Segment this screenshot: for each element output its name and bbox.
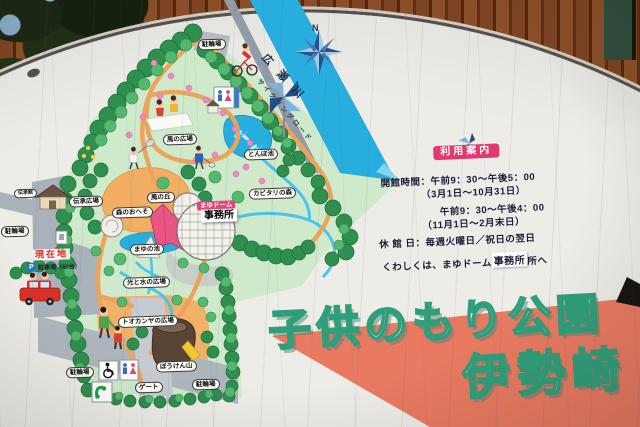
compass-north-letter: N: [312, 23, 319, 33]
map-label-folk-house: 伝承館: [14, 189, 37, 199]
contact-line: くわしくは、まゆドーム事務所所へ: [382, 251, 548, 273]
usage-info-panel: 利用案内 開館時間：午前9：30～午後5：00 （3月1日～10月31日） 午前…: [375, 139, 596, 288]
map-label-bicycle-right: 駐輪場: [192, 379, 220, 391]
map-label-gate: ゲート: [135, 382, 163, 394]
map-label-adventure-hill: ぼうけん山: [156, 360, 197, 372]
map-label-bicycle-left: 駐輪場: [66, 367, 94, 379]
map-label-densho-plaza: 伝承広場: [69, 195, 103, 207]
map-label-bicycle-west: 駐輪場: [1, 226, 29, 238]
map-label-tookanya-plaza: トオカンヤの広場: [118, 315, 178, 328]
map-label-dragonfly-pond: とんぼ池: [244, 148, 278, 160]
phone-icon: [92, 382, 112, 402]
contact-prefix: くわしくは、まゆドーム: [382, 258, 492, 274]
map-label-office: 事務所: [201, 208, 237, 222]
map-label-wind-hill: 風の丘: [147, 192, 175, 204]
map-label-kabitari-forest: カビタリの森: [249, 187, 296, 200]
restroom-sign-south: [120, 360, 138, 380]
map-label-forest-navel: 森のおヘそ: [112, 206, 153, 218]
parking-capacity-label: 駐車場（60台）: [38, 261, 81, 271]
wheelchair-icon: [99, 361, 118, 380]
closed-days-line: 休 館 日：毎週火曜日／祝日の翌日: [379, 230, 536, 251]
park-sign-photo: 広瀬川 サイクリングロード N 駐輪場 駐輪場 駐輪場 駐輪場 風の広場 とんぼ…: [0, 0, 640, 427]
info-badge: 利用案内: [433, 143, 500, 160]
opening-hours-period2: （11月1日～2月末日）: [422, 213, 525, 231]
contact-suffix: 所へ: [527, 255, 547, 267]
map-label-light-water-plaza: 光と水の広場: [123, 276, 170, 289]
map-label-bicycle-top: 駐輪場: [198, 39, 226, 51]
park-title-line2: 伊勢崎: [460, 330, 628, 409]
parking-p-icon: P: [27, 263, 36, 272]
contact-office-sticker: 事務所: [491, 251, 527, 268]
current-location-label: 現在地: [33, 248, 70, 260]
parking-row: P 駐車場（60台）: [27, 261, 81, 272]
map-label-mayu-pond: まゆの池: [130, 243, 164, 255]
map-label-wind-plaza: 風の広場: [163, 133, 197, 145]
